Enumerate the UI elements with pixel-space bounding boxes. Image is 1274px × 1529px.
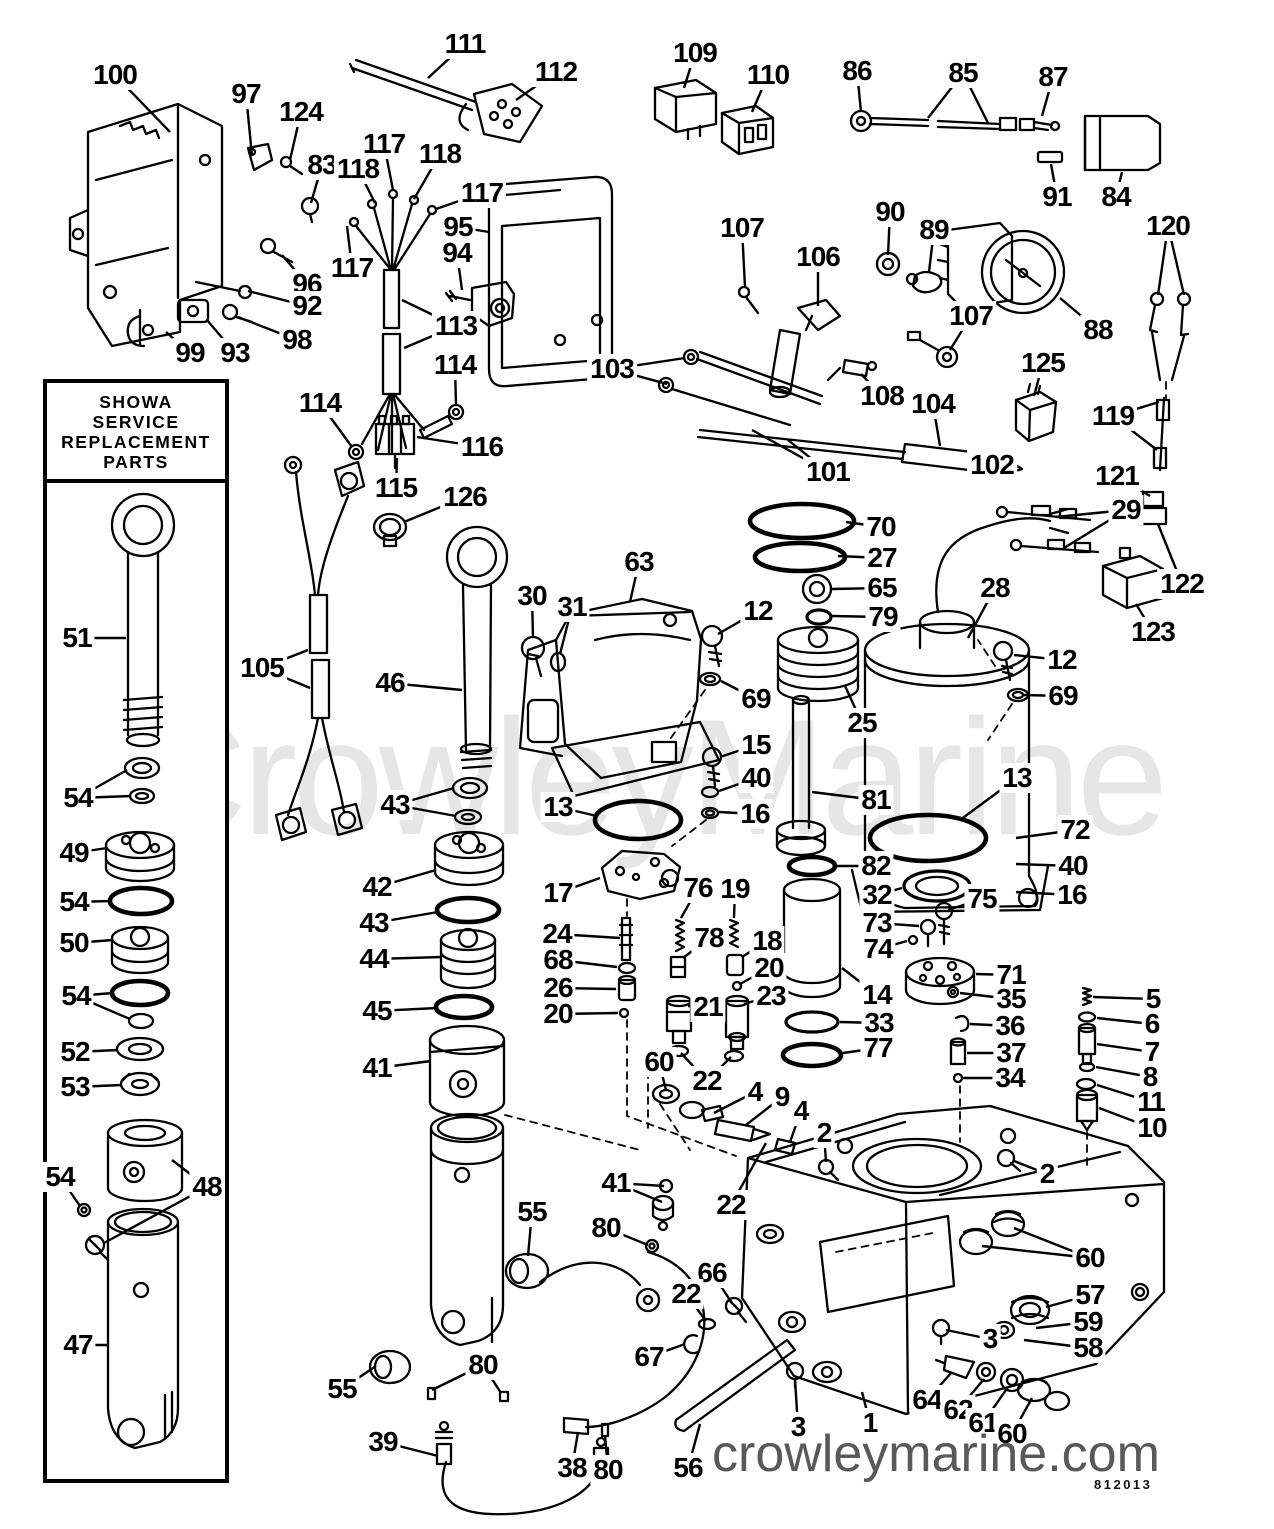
callout-part-2-97[interactable]: 2 — [1037, 1159, 1058, 1189]
callout-part-74-81[interactable]: 74 — [860, 934, 895, 964]
callout-part-106-37[interactable]: 106 — [793, 242, 843, 272]
callout-part-2-110[interactable]: 2 — [814, 1118, 835, 1148]
callout-part-19-99[interactable]: 19 — [717, 874, 752, 904]
callout-part-39-120[interactable]: 39 — [365, 1427, 400, 1457]
callout-part-121-46[interactable]: 121 — [1092, 461, 1142, 491]
callout-part-118-5[interactable]: 118 — [334, 154, 382, 184]
callout-part-68-70[interactable]: 68 — [540, 945, 575, 975]
callout-part-54-140[interactable]: 54 — [58, 981, 93, 1011]
document-number: 812013 — [1094, 1477, 1152, 1492]
callout-part-80-122[interactable]: 80 — [590, 1455, 625, 1485]
callout-part-40-63[interactable]: 40 — [738, 763, 773, 793]
callout-part-107-36[interactable]: 107 — [717, 213, 767, 243]
callout-part-125-44[interactable]: 125 — [1018, 348, 1068, 378]
callout-part-117-7[interactable]: 117 — [458, 178, 506, 208]
callout-part-79-54[interactable]: 79 — [865, 602, 900, 632]
callout-part-118-6[interactable]: 118 — [416, 139, 464, 169]
callout-part-51-135[interactable]: 51 — [59, 623, 94, 653]
callout-part-75-78[interactable]: 75 — [964, 884, 999, 914]
callout-part-91-30[interactable]: 91 — [1039, 182, 1074, 212]
callout-part-88-34[interactable]: 88 — [1080, 315, 1115, 345]
callout-part-54-136[interactable]: 54 — [60, 783, 95, 813]
callout-part-81-65[interactable]: 81 — [858, 785, 893, 815]
callout-part-17-68[interactable]: 17 — [540, 878, 575, 908]
callout-part-23-103[interactable]: 23 — [753, 981, 788, 1011]
callout-part-46-61[interactable]: 46 — [372, 668, 407, 698]
callout-part-22-105[interactable]: 22 — [689, 1066, 724, 1096]
callout-part-100-0[interactable]: 100 — [90, 60, 140, 90]
callout-part-27-52[interactable]: 27 — [864, 543, 899, 573]
callout-part-20-72[interactable]: 20 — [540, 999, 575, 1029]
callout-part-54-138[interactable]: 54 — [56, 887, 91, 917]
callout-part-113-20[interactable]: 113 — [432, 311, 480, 341]
callout-part-97-1[interactable]: 97 — [228, 79, 263, 109]
callout-part-31-60[interactable]: 31 — [554, 592, 589, 622]
callout-part-115-24[interactable]: 115 — [372, 473, 420, 503]
callout-part-67-117[interactable]: 67 — [631, 1342, 666, 1372]
callout-part-86-27[interactable]: 86 — [839, 56, 874, 86]
callout-part-13-66[interactable]: 13 — [540, 792, 575, 822]
callout-part-41-151[interactable]: 41 — [359, 1053, 394, 1083]
callout-part-41-111[interactable]: 41 — [598, 1168, 633, 1198]
callout-part-105-26[interactable]: 105 — [237, 653, 287, 683]
callout-part-54-143[interactable]: 54 — [42, 1162, 77, 1192]
callout-part-30-59[interactable]: 30 — [514, 581, 549, 611]
callout-part-44-149[interactable]: 44 — [356, 944, 391, 974]
callout-part-110-17[interactable]: 110 — [744, 60, 792, 90]
callout-part-52-141[interactable]: 52 — [57, 1037, 92, 1067]
callout-part-55-118[interactable]: 55 — [324, 1374, 359, 1404]
callout-part-124-2[interactable]: 124 — [276, 97, 326, 127]
callout-part-4-109[interactable]: 4 — [791, 1096, 812, 1126]
callout-part-104-41[interactable]: 104 — [908, 389, 958, 419]
callout-part-126-25[interactable]: 126 — [440, 482, 490, 512]
callout-part-3-134[interactable]: 3 — [980, 1324, 1001, 1354]
callout-part-6-92[interactable]: 6 — [1142, 1009, 1163, 1039]
callout-part-16-77[interactable]: 16 — [1054, 880, 1089, 910]
callout-part-34-90[interactable]: 34 — [992, 1063, 1027, 1093]
callout-part-47-145[interactable]: 47 — [60, 1330, 95, 1360]
callout-part-107-38[interactable]: 107 — [946, 301, 996, 331]
callout-part-14-83[interactable]: 14 — [859, 980, 894, 1010]
callout-part-87-29[interactable]: 87 — [1035, 62, 1070, 92]
callout-part-84-31[interactable]: 84 — [1098, 182, 1133, 212]
callout-part-40-76[interactable]: 40 — [1055, 851, 1090, 881]
callout-part-64-126[interactable]: 64 — [909, 1385, 944, 1415]
callout-part-101-42[interactable]: 101 — [803, 457, 853, 487]
callout-part-43-146[interactable]: 43 — [377, 790, 412, 820]
callout-part-122-48[interactable]: 122 — [1157, 569, 1207, 599]
callout-part-43-148[interactable]: 43 — [356, 908, 391, 938]
callout-part-114-22[interactable]: 114 — [431, 350, 479, 380]
callout-part-123-49[interactable]: 123 — [1128, 617, 1178, 647]
callout-part-80-113[interactable]: 80 — [588, 1213, 623, 1243]
callout-part-70-51[interactable]: 70 — [863, 512, 898, 542]
callout-part-12-73[interactable]: 12 — [1044, 645, 1079, 675]
callout-part-60-106[interactable]: 60 — [641, 1047, 676, 1077]
parts-diagram-page: CrowleyMarine SHOWA SERVICE REPLACEMENT … — [0, 0, 1274, 1529]
callout-part-4-107[interactable]: 4 — [745, 1077, 766, 1107]
callout-part-119-45[interactable]: 119 — [1089, 401, 1137, 431]
callout-part-49-137[interactable]: 49 — [56, 838, 91, 868]
callout-part-22-112[interactable]: 22 — [713, 1190, 748, 1220]
callout-part-22-116[interactable]: 22 — [668, 1279, 703, 1309]
callout-part-12-56[interactable]: 12 — [740, 596, 775, 626]
callout-part-63-58[interactable]: 63 — [621, 547, 656, 577]
callout-part-58-132[interactable]: 58 — [1070, 1333, 1105, 1363]
callout-part-116-23[interactable]: 116 — [458, 432, 506, 462]
callout-part-99-13[interactable]: 99 — [172, 338, 207, 368]
callout-part-28-50[interactable]: 28 — [977, 573, 1012, 603]
callout-part-93-12[interactable]: 93 — [217, 338, 252, 368]
callout-part-77-85[interactable]: 77 — [860, 1033, 895, 1063]
callout-part-55-114[interactable]: 55 — [514, 1197, 549, 1227]
callout-part-98-11[interactable]: 98 — [279, 325, 314, 355]
site-watermark-text: crowleymarine.com — [712, 1428, 1160, 1480]
callout-part-78-100[interactable]: 78 — [691, 923, 726, 953]
callout-part-9-108[interactable]: 9 — [772, 1082, 793, 1112]
callout-part-10-96[interactable]: 10 — [1134, 1113, 1169, 1143]
callout-part-16-64[interactable]: 16 — [737, 799, 772, 829]
callout-part-89-33[interactable]: 89 — [916, 215, 951, 245]
callout-part-60-133[interactable]: 60 — [1072, 1243, 1107, 1273]
callout-part-69-74[interactable]: 69 — [1045, 681, 1080, 711]
callout-part-50-139[interactable]: 50 — [56, 928, 91, 958]
callout-part-21-104[interactable]: 21 — [690, 992, 725, 1022]
callout-part-112-15[interactable]: 112 — [532, 57, 580, 87]
callout-part-56-123[interactable]: 56 — [670, 1453, 705, 1483]
callout-part-82-82[interactable]: 82 — [858, 851, 893, 881]
callout-part-114-21[interactable]: 114 — [296, 388, 344, 418]
callout-part-108-40[interactable]: 108 — [857, 381, 907, 411]
callout-part-38-121[interactable]: 38 — [554, 1453, 589, 1483]
callout-part-15-62[interactable]: 15 — [738, 730, 773, 760]
callout-part-32-79[interactable]: 32 — [859, 880, 894, 910]
callout-part-111-14[interactable]: 111 — [442, 29, 489, 59]
callout-part-45-150[interactable]: 45 — [359, 996, 394, 1026]
callout-part-102-43[interactable]: 102 — [967, 450, 1017, 480]
callout-part-76-98[interactable]: 76 — [680, 873, 715, 903]
callout-part-53-142[interactable]: 53 — [57, 1072, 92, 1102]
callout-part-69-57[interactable]: 69 — [738, 684, 773, 714]
callout-part-120-35[interactable]: 120 — [1143, 211, 1193, 241]
callout-part-117-8[interactable]: 117 — [328, 253, 376, 283]
callout-part-92-10[interactable]: 92 — [289, 291, 324, 321]
callout-part-25-55[interactable]: 25 — [844, 708, 879, 738]
callout-part-80-119[interactable]: 80 — [465, 1350, 500, 1380]
callout-part-42-147[interactable]: 42 — [359, 872, 394, 902]
callout-part-13-67[interactable]: 13 — [999, 763, 1034, 793]
callout-part-48-144[interactable]: 48 — [189, 1172, 224, 1202]
callout-part-85-28[interactable]: 85 — [945, 58, 980, 88]
callout-part-90-32[interactable]: 90 — [872, 197, 907, 227]
callout-part-109-16[interactable]: 109 — [670, 38, 720, 68]
callout-part-20-102[interactable]: 20 — [751, 953, 786, 983]
callout-part-65-53[interactable]: 65 — [864, 573, 899, 603]
callout-layer: 1009712483117118118117117969298939911111… — [0, 0, 1274, 1529]
callout-part-29-47[interactable]: 29 — [1108, 495, 1143, 525]
callout-part-94-19[interactable]: 94 — [439, 238, 474, 268]
callout-part-103-39[interactable]: 103 — [587, 354, 637, 384]
callout-part-72-75[interactable]: 72 — [1057, 815, 1092, 845]
